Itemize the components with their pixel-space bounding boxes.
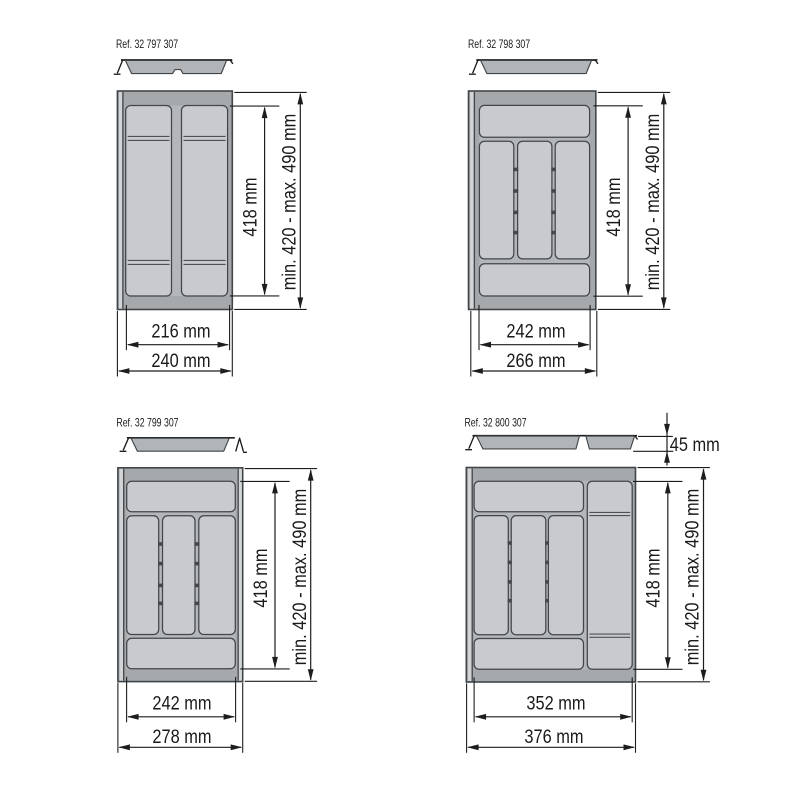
svg-text:352 mm: 352 mm (526, 692, 585, 714)
svg-text:418 mm: 418 mm (239, 177, 261, 236)
svg-text:Ref. 32 800 307: Ref. 32 800 307 (465, 417, 527, 429)
svg-text:242 mm: 242 mm (506, 320, 565, 342)
svg-text:266 mm: 266 mm (506, 349, 565, 371)
svg-text:Ref. 32 799 307: Ref. 32 799 307 (116, 417, 178, 429)
svg-text:278 mm: 278 mm (152, 726, 211, 748)
svg-text:min. 420 - max. 490 mm: min. 420 - max. 490 mm (642, 114, 664, 291)
svg-text:240 mm: 240 mm (151, 349, 210, 371)
svg-text:376 mm: 376 mm (524, 726, 583, 748)
svg-text:242 mm: 242 mm (152, 692, 211, 714)
svg-text:min. 420 - max. 490 mm: min. 420 - max. 490 mm (289, 489, 311, 666)
svg-text:216 mm: 216 mm (151, 320, 210, 342)
svg-text:Ref. 32 797 307: Ref. 32 797 307 (116, 39, 178, 51)
svg-text:min. 420 - max. 490 mm: min. 420 - max. 490 mm (681, 489, 703, 666)
svg-text:418 mm: 418 mm (603, 177, 625, 236)
svg-text:418 mm: 418 mm (250, 548, 272, 607)
svg-text:Ref. 32 798 307: Ref. 32 798 307 (468, 39, 530, 51)
svg-text:45 mm: 45 mm (670, 434, 720, 456)
svg-text:min. 420 - max. 490 mm: min. 420 - max. 490 mm (278, 114, 300, 291)
svg-text:418 mm: 418 mm (642, 548, 664, 607)
